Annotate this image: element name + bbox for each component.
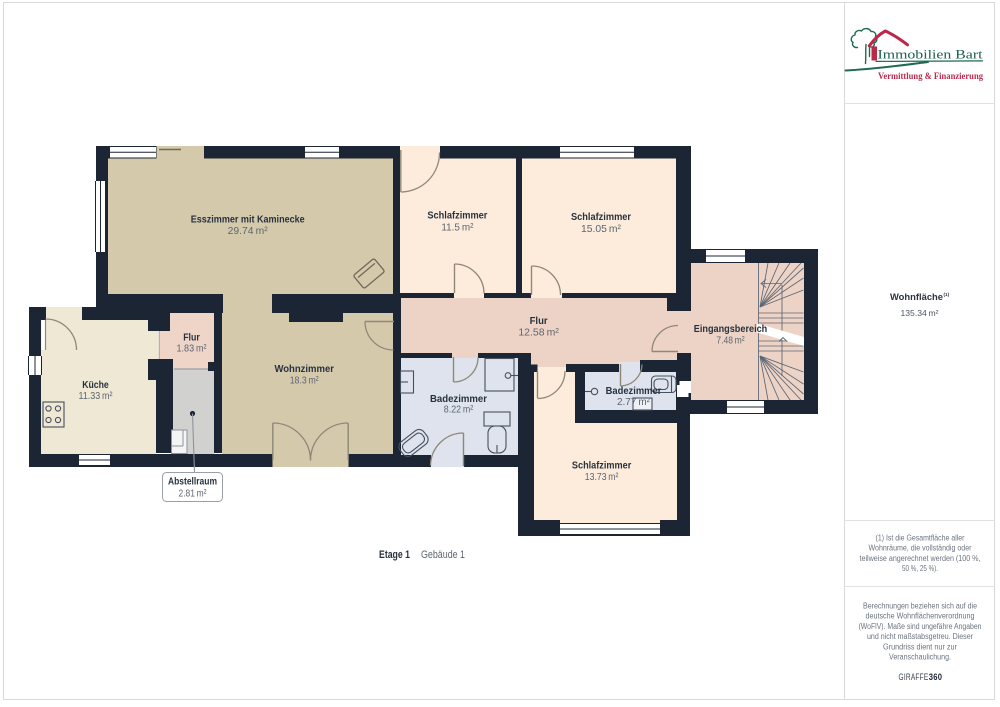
- svg-text:Abstellraum: Abstellraum: [168, 477, 217, 488]
- svg-text:GIRAFFE: GIRAFFE: [899, 672, 929, 682]
- svg-text:und nicht maßstabsgetreu. Dies: und nicht maßstabsgetreu. Dieser: [867, 632, 973, 641]
- svg-text:Wohnfläche: Wohnfläche: [890, 292, 943, 302]
- svg-text:135.34 m²: 135.34 m²: [901, 308, 939, 318]
- svg-text:7.48 m²: 7.48 m²: [716, 335, 745, 346]
- svg-text:11.5 m²: 11.5 m²: [441, 222, 474, 233]
- svg-text:11.33 m²: 11.33 m²: [79, 391, 114, 402]
- svg-text:deutsche Wohnflächenverordnung: deutsche Wohnflächenverordnung: [866, 612, 975, 621]
- svg-text:Schlafzimmer: Schlafzimmer: [427, 210, 487, 221]
- svg-text:Wohnzimmer: Wohnzimmer: [274, 364, 334, 375]
- svg-text:Gebäude 1: Gebäude 1: [421, 549, 465, 561]
- svg-text:18.3 m²: 18.3 m²: [290, 376, 320, 387]
- svg-text:1.83 m²: 1.83 m²: [177, 344, 208, 355]
- svg-text:Vermittlung & Finanzierung: Vermittlung & Finanzierung: [878, 71, 983, 82]
- svg-text:Eingangsbereich: Eingangsbereich: [694, 324, 768, 335]
- svg-text:2.77 m²: 2.77 m²: [617, 397, 651, 408]
- svg-text:Immobilien Bart: Immobilien Bart: [878, 47, 983, 62]
- svg-text:Veranschaulichung.: Veranschaulichung.: [889, 653, 951, 662]
- svg-text:Flur: Flur: [183, 333, 200, 344]
- svg-text:8.22 m²: 8.22 m²: [444, 404, 474, 415]
- svg-text:(1): (1): [944, 292, 950, 297]
- svg-text:Wohnräume, die vollständig ode: Wohnräume, die vollständig oder: [869, 544, 972, 553]
- svg-text:(WoFlV). Maße sind ungefähre A: (WoFlV). Maße sind ungefähre Angaben: [859, 622, 982, 631]
- svg-text:Schlafzimmer: Schlafzimmer: [571, 212, 631, 223]
- svg-text:2.81 m²: 2.81 m²: [179, 489, 208, 500]
- svg-text:(1) Ist die Gesamtfläche aller: (1) Ist die Gesamtfläche aller: [876, 534, 965, 543]
- svg-text:12.58 m²: 12.58 m²: [518, 327, 559, 338]
- svg-text:Esszimmer mit Kaminecke: Esszimmer mit Kaminecke: [191, 215, 305, 226]
- svg-text:13.73 m²: 13.73 m²: [585, 472, 619, 483]
- svg-text:Etage 1: Etage 1: [379, 549, 410, 561]
- svg-text:Berechnungen beziehen sich auf: Berechnungen beziehen sich auf die: [863, 602, 977, 611]
- svg-text:Schlafzimmer: Schlafzimmer: [572, 461, 631, 472]
- svg-text:teilweise angerechnet werden (: teilweise angerechnet werden (100 %,: [860, 554, 981, 563]
- svg-text:Küche: Küche: [82, 380, 109, 391]
- svg-text:Badezimmer: Badezimmer: [606, 386, 662, 397]
- svg-text:29.74 m²: 29.74 m²: [228, 226, 269, 237]
- svg-text:Flur: Flur: [530, 316, 548, 327]
- svg-text:50 %, 25 %).: 50 %, 25 %).: [902, 564, 938, 573]
- svg-text:Grundriss dient nur zur: Grundriss dient nur zur: [883, 642, 957, 651]
- svg-text:360: 360: [929, 672, 943, 682]
- svg-text:15.05 m²: 15.05 m²: [581, 224, 622, 235]
